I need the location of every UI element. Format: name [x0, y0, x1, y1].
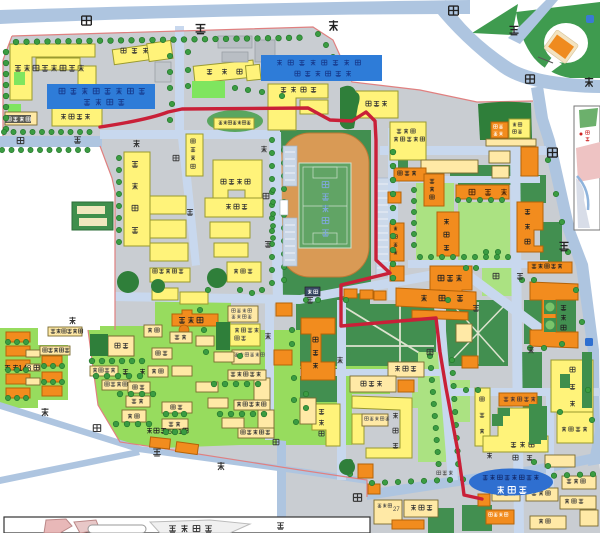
- svg-text:27: 27: [393, 507, 400, 513]
